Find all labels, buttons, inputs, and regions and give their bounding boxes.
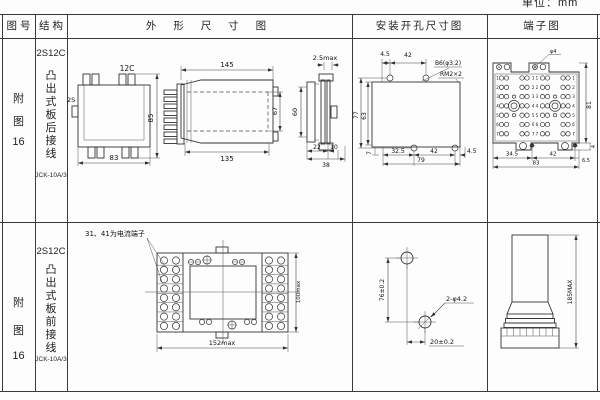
outline-drawing-row2: 31、41为电流端子 152max 100max <box>67 222 352 392</box>
dim-label: 85 <box>147 114 155 123</box>
dim-label: 83 <box>110 154 119 162</box>
dim-label: 185MAX <box>567 280 574 305</box>
terminal-grid: 111 1222 2333 3444 4555 5666 6777 7 <box>496 76 575 137</box>
dim-label: 10 <box>330 144 338 151</box>
dim-label: 76±0.2 <box>379 279 386 301</box>
dim-label: 67 <box>271 107 279 115</box>
dim-label: 7 <box>366 151 373 155</box>
svg-text:6 6: 6 6 <box>532 122 539 127</box>
fig-number-row1: 附 图 16 <box>2 90 35 148</box>
fig-number-row2: 附 图 16 <box>2 294 35 362</box>
header-terminal: 端子图 <box>487 14 597 38</box>
table-col-divider-1 <box>35 14 36 392</box>
svg-text:7: 7 <box>572 131 575 136</box>
fig-char: 图 <box>13 322 24 338</box>
svg-text:5: 5 <box>496 113 499 118</box>
fig-char: 图 <box>13 113 24 129</box>
dim-label: 81 <box>586 101 593 109</box>
hole-spec-label: B6(φ3.2) <box>435 60 461 67</box>
dim-label: 63 <box>361 112 368 120</box>
side-view: 145 135 67 <box>164 61 283 163</box>
header-fig-no: 图 号 <box>2 14 35 38</box>
dim-label: 42 <box>550 152 557 158</box>
fig-number: 16 <box>12 136 24 148</box>
dim-label: 6.5 <box>582 158 590 164</box>
structure-model-row1: JCK-10A/3 <box>35 172 67 179</box>
dim-label: 2S <box>67 96 75 104</box>
svg-text:1: 1 <box>572 76 575 81</box>
terminal-diagram-row1: 111 1222 2333 3444 4555 5666 6777 7 φ4 8… <box>487 38 600 222</box>
dim-label: 32.5 <box>391 148 405 155</box>
dim-label: 77 <box>353 111 360 119</box>
thread-spec-label: RM2×2 <box>440 71 462 78</box>
svg-text:1: 1 <box>496 76 499 81</box>
svg-text:5 5: 5 5 <box>532 113 539 118</box>
structure-type-row1: 2S12C <box>35 48 67 59</box>
install-drawing-row2: 2-φ4.2 76±0.2 20±0.2 <box>352 222 487 392</box>
hole-spec-label: 2-φ4.2 <box>446 295 467 303</box>
dim-label: 60 <box>291 108 299 116</box>
dim-label: 42 <box>404 52 412 59</box>
structure-desc-row1: 凸出式板后接线 <box>44 70 58 161</box>
dim-label: 22 <box>313 144 321 151</box>
dim-label: 12C <box>120 64 135 73</box>
fig-char: 附 <box>13 294 24 310</box>
dim-label: 79 <box>417 157 425 164</box>
outline-drawing-row1: 12C 2S 85 83 145 135 <box>67 38 352 222</box>
header-outline: 外 形 尺 寸 图 <box>67 14 352 38</box>
svg-text:2: 2 <box>496 85 499 90</box>
svg-text:7 7: 7 7 <box>532 131 539 136</box>
svg-text:4: 4 <box>572 104 575 109</box>
dim-label: 145 <box>220 61 233 69</box>
dim-label: 4.5 <box>467 148 477 155</box>
install-drawing-row1: 4.5 42 B6(φ3.2) RM2×2 77 63 7 32.5 42 4.… <box>352 38 487 222</box>
header-install: 安装开孔尺寸图 <box>352 14 487 38</box>
dim-label: 4 <box>591 145 597 148</box>
svg-text:7: 7 <box>496 131 499 136</box>
svg-text:5: 5 <box>572 113 575 118</box>
header-structure: 结 构 <box>35 14 67 38</box>
pin-size-label: φ4 <box>550 49 556 55</box>
front-view: 12C 2S 85 83 <box>67 64 160 166</box>
fig-char: 附 <box>13 90 24 106</box>
svg-text:6: 6 <box>572 122 575 127</box>
dim-label: 152max <box>209 339 236 347</box>
terminal-diagram-row2: 185MAX <box>487 222 600 392</box>
dim-label: 38 <box>322 162 330 169</box>
dim-label: 135 <box>220 155 233 163</box>
dim-label: 100max <box>296 280 302 303</box>
end-view: 2.5max 60 22 10 38 <box>291 54 345 169</box>
svg-text:4 4: 4 4 <box>532 104 539 109</box>
structure-type-row2: 2S12C <box>35 246 67 257</box>
dim-label: 2.5max <box>313 54 338 62</box>
svg-text:1 1: 1 1 <box>532 76 539 81</box>
structure-model-row2: JCK-10A/3 <box>35 356 67 363</box>
dim-label: 20±0.2 <box>430 338 454 346</box>
unit-label: 单位：mm <box>522 0 578 10</box>
manual-page: 单位：mm 图 号 结 构 外 形 尺 寸 图 安装开孔尺寸图 端子图 附 图 … <box>0 0 600 400</box>
dim-label: 4.5 <box>380 51 390 58</box>
svg-text:4: 4 <box>496 104 499 109</box>
svg-text:3 3: 3 3 <box>532 94 539 99</box>
svg-text:2 2: 2 2 <box>532 85 539 90</box>
fig-number: 16 <box>12 350 24 362</box>
dim-label: 34.5 <box>506 152 519 158</box>
svg-text:6: 6 <box>496 122 499 127</box>
current-terminal-note: 31、41为电流端子 <box>85 229 145 238</box>
dim-label: 83 <box>533 161 540 167</box>
svg-text:3: 3 <box>572 94 575 99</box>
dim-label: 42 <box>430 148 438 155</box>
svg-text:2: 2 <box>572 85 575 90</box>
svg-text:3: 3 <box>496 94 499 99</box>
structure-desc-row2: 凸出式板前接线 <box>44 264 58 355</box>
